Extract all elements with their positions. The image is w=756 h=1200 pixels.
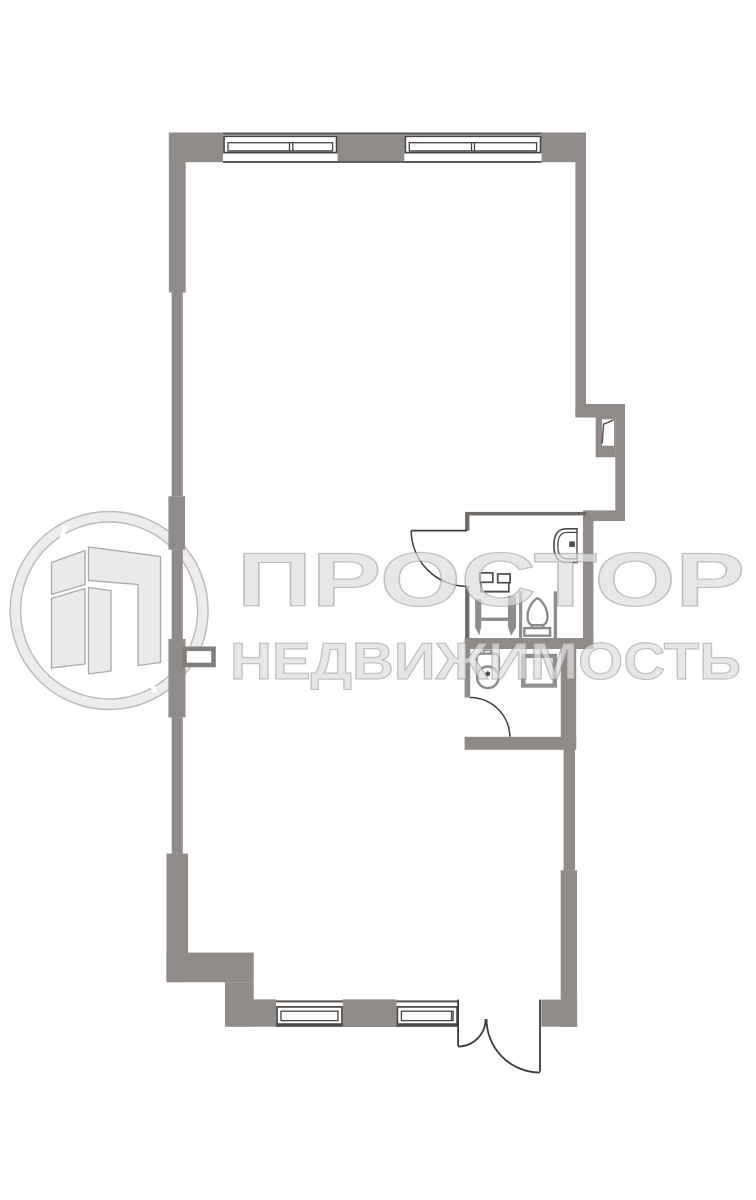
svg-text:ПРОСТОР: ПРОСТОР — [237, 538, 745, 623]
svg-text:НЕДВИЖИМОСТЬ: НЕДВИЖИМОСТЬ — [230, 633, 741, 691]
